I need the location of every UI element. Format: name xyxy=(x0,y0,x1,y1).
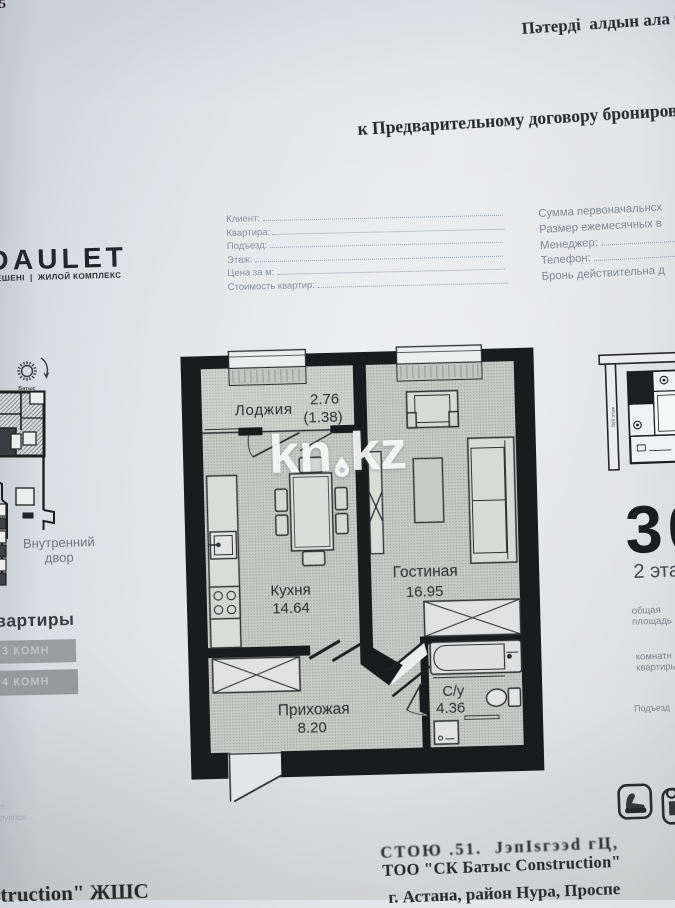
svg-text:Кухня: Кухня xyxy=(270,581,311,599)
svg-text:С/у: С/у xyxy=(442,683,465,700)
svg-text:Прихожая: Прихожая xyxy=(277,700,349,719)
svg-text:Гостиная: Гостиная xyxy=(392,562,457,581)
svg-text:№9 этаж: №9 этаж xyxy=(610,406,617,427)
svg-text:14.64: 14.64 xyxy=(272,599,310,617)
svg-text:8.20: 8.20 xyxy=(297,719,327,737)
svg-text:4.36: 4.36 xyxy=(435,699,465,717)
svg-text:16.95: 16.95 xyxy=(405,582,443,600)
svg-text:2.76: 2.76 xyxy=(309,390,339,408)
svg-text:Лоджия: Лоджия xyxy=(234,400,292,419)
